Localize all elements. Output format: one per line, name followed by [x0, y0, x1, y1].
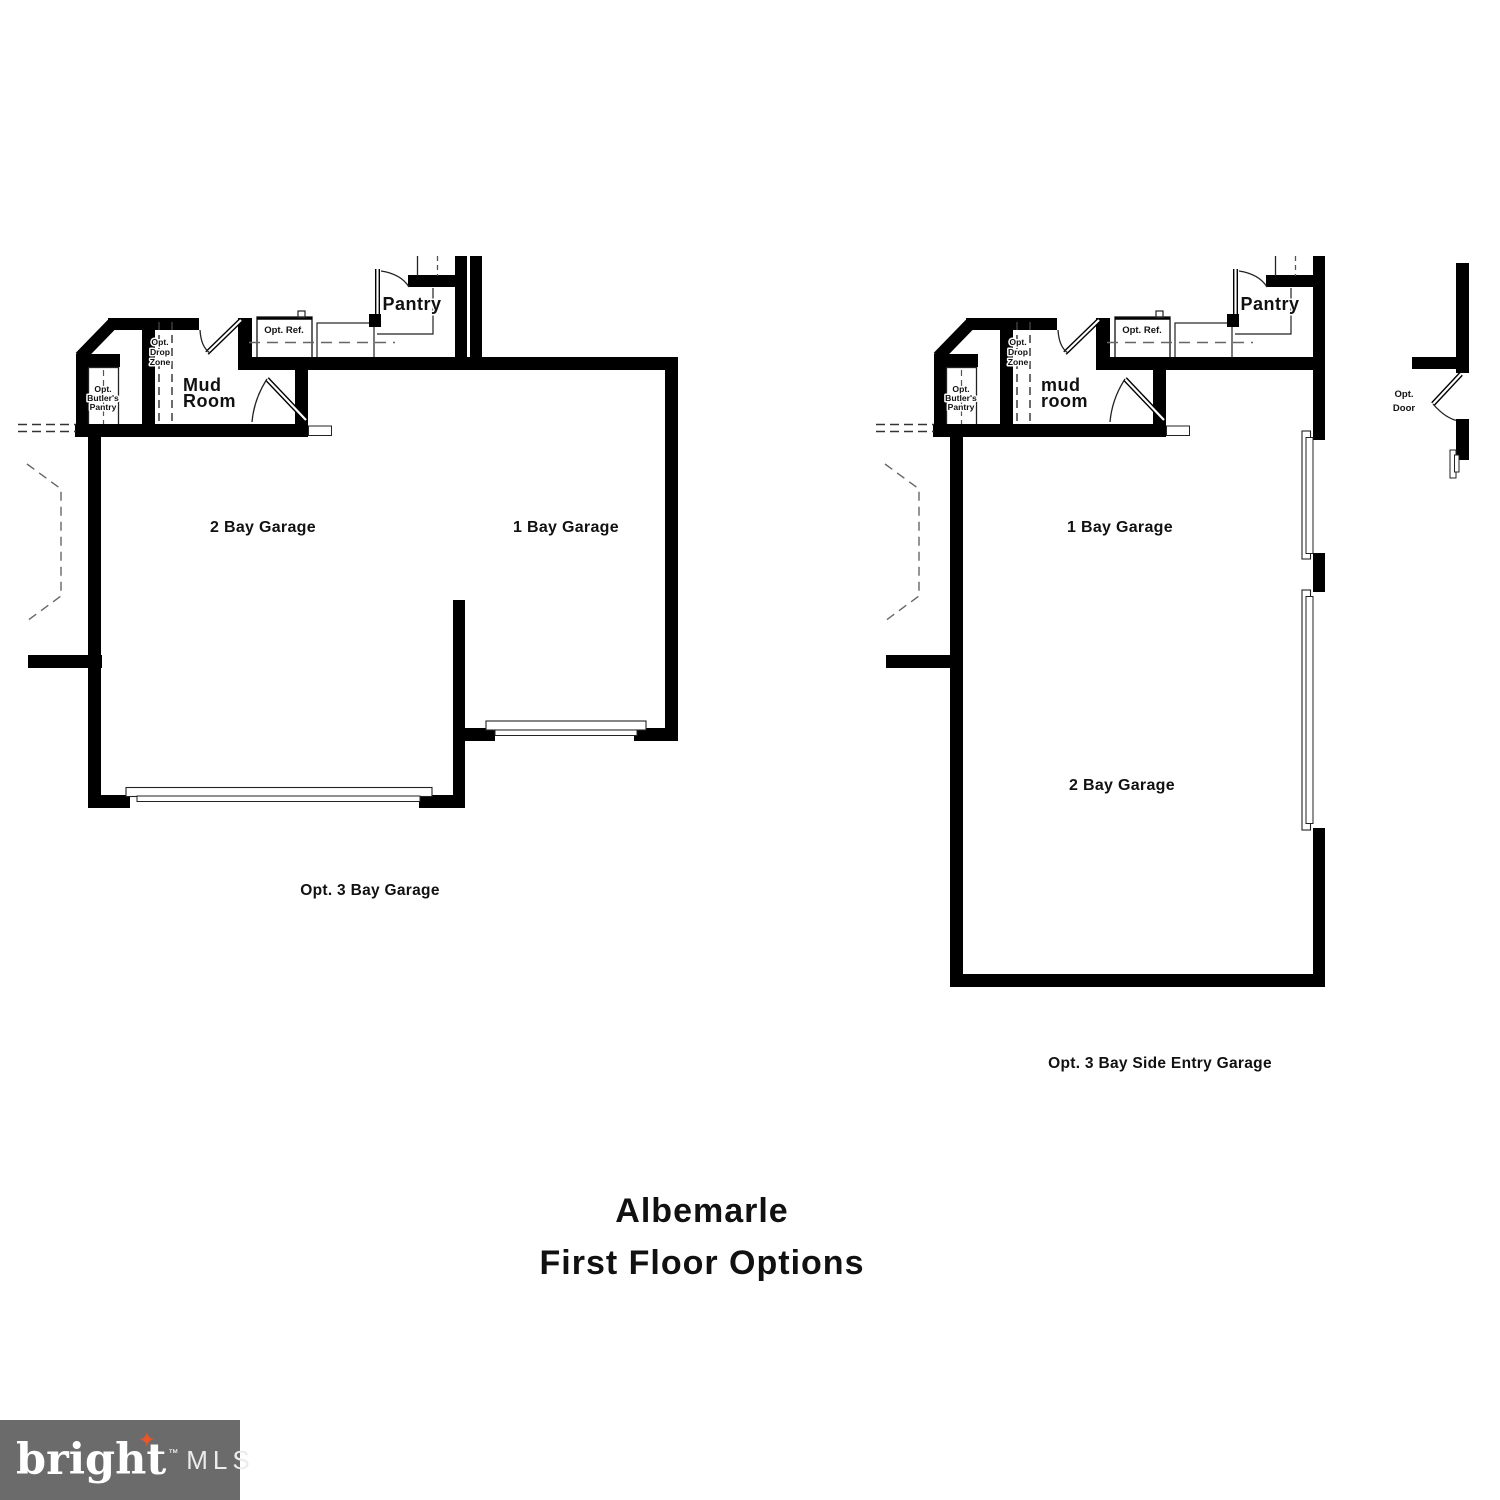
svg-text:Pantry: Pantry — [948, 402, 975, 412]
garage-door-2bay — [126, 788, 432, 802]
star-icon: ✦ — [138, 1430, 156, 1451]
floor-plan-canvas: Pantry Opt. Ref. Opt. Drop Zone Opt. But… — [0, 0, 1500, 1500]
trademark-symbol: ™ — [168, 1448, 178, 1459]
svg-text:Drop: Drop — [150, 347, 170, 357]
room-label-opt-ref: Opt. Ref. — [1122, 325, 1162, 336]
svg-text:Drop: Drop — [1008, 347, 1028, 357]
room-label-pantry: Pantry — [1240, 294, 1299, 314]
bright-mls-logo: bright✦™ MLS — [0, 1420, 240, 1500]
room-label-2-bay-garage: 2 Bay Garage — [210, 519, 316, 536]
page-title: Albemarle — [615, 1192, 788, 1230]
room-label-drop-zone: Opt. — [151, 337, 168, 347]
svg-text:Zone: Zone — [1008, 357, 1029, 367]
garage-door-1bay — [486, 721, 646, 736]
title-block: Albemarle First Floor Options — [540, 1192, 865, 1282]
plan-caption-left: Opt. 3 Bay Garage — [300, 882, 440, 899]
plan-caption-right: Opt. 3 Bay Side Entry Garage — [1048, 1055, 1272, 1072]
svg-text:Door: Door — [1393, 403, 1415, 414]
plan-3-bay-side-entry-garage: Pantry Opt. Ref. Opt. Drop Zone Opt. But… — [876, 256, 1325, 1072]
room-label-1-bay-garage: 1 Bay Garage — [1067, 519, 1173, 536]
svg-text:room: room — [1041, 391, 1088, 411]
svg-text:Pantry: Pantry — [90, 402, 117, 412]
room-label-pantry: Pantry — [382, 294, 441, 314]
side-garage-door-2bay — [1302, 590, 1313, 830]
floor-plan-page: Pantry Opt. Ref. Opt. Drop Zone Opt. But… — [0, 0, 1500, 1500]
logo-brand-text: bright✦™ — [16, 1439, 176, 1482]
opt-door-swing — [1433, 374, 1461, 421]
room-label-opt-ref: Opt. Ref. — [264, 325, 304, 336]
logo-mls-text: MLS — [186, 1445, 254, 1476]
opt-door-detail: Opt. Door — [1393, 263, 1469, 478]
opt-door-label: Opt. — [1395, 389, 1414, 400]
page-subtitle: First Floor Options — [540, 1244, 865, 1282]
svg-text:Room: Room — [183, 391, 236, 411]
room-label-drop-zone: Opt. — [1009, 337, 1026, 347]
room-label-2-bay-garage: 2 Bay Garage — [1069, 777, 1175, 794]
svg-text:Zone: Zone — [150, 357, 171, 367]
room-label-1-bay-garage: 1 Bay Garage — [513, 519, 619, 536]
plan-3-bay-garage: Pantry Opt. Ref. Opt. Drop Zone Opt. But… — [18, 256, 678, 899]
side-garage-door-1bay — [1302, 431, 1313, 559]
